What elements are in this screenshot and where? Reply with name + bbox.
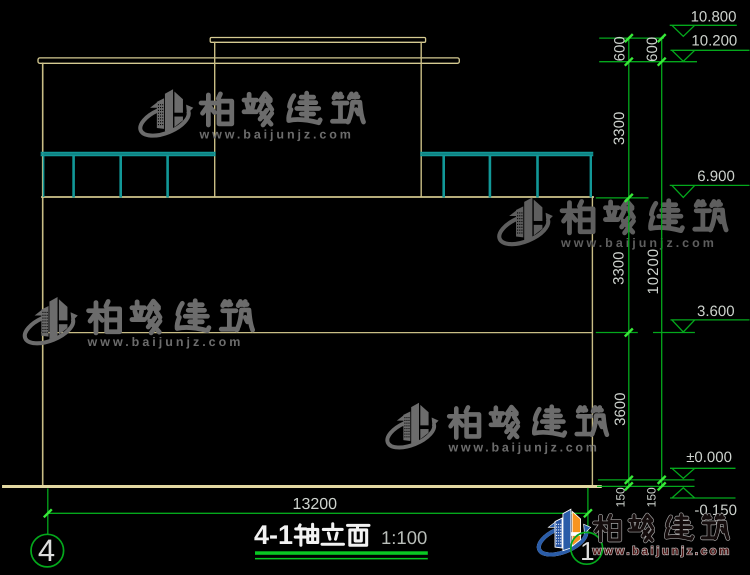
svg-text:3300: 3300 bbox=[611, 112, 628, 145]
svg-text:600: 600 bbox=[611, 36, 628, 61]
svg-text:600: 600 bbox=[644, 37, 661, 62]
svg-text:www.baijunjz.com: www.baijunjz.com bbox=[560, 236, 717, 250]
svg-text:3600: 3600 bbox=[612, 393, 629, 426]
svg-text:3.600: 3.600 bbox=[697, 303, 735, 320]
svg-text:4-1: 4-1 bbox=[254, 520, 293, 550]
svg-text:www.baijunjz.com: www.baijunjz.com bbox=[592, 546, 732, 558]
svg-text:www.baijunjz.com: www.baijunjz.com bbox=[87, 335, 244, 349]
svg-text:150: 150 bbox=[613, 487, 627, 507]
svg-text:13200: 13200 bbox=[293, 496, 338, 513]
svg-text:±0.000: ±0.000 bbox=[686, 449, 732, 466]
svg-text:3300: 3300 bbox=[611, 252, 628, 285]
svg-text:1:100: 1:100 bbox=[381, 527, 427, 548]
svg-text:www.baijunjz.com: www.baijunjz.com bbox=[448, 441, 600, 455]
svg-text:www.baijunjz.com: www.baijunjz.com bbox=[199, 128, 354, 142]
svg-text:4: 4 bbox=[38, 533, 55, 568]
svg-text:6.900: 6.900 bbox=[697, 168, 735, 185]
svg-text:10.800: 10.800 bbox=[691, 8, 737, 25]
svg-text:10200: 10200 bbox=[645, 248, 662, 295]
svg-text:150: 150 bbox=[644, 487, 658, 507]
svg-text:10.200: 10.200 bbox=[691, 32, 737, 49]
